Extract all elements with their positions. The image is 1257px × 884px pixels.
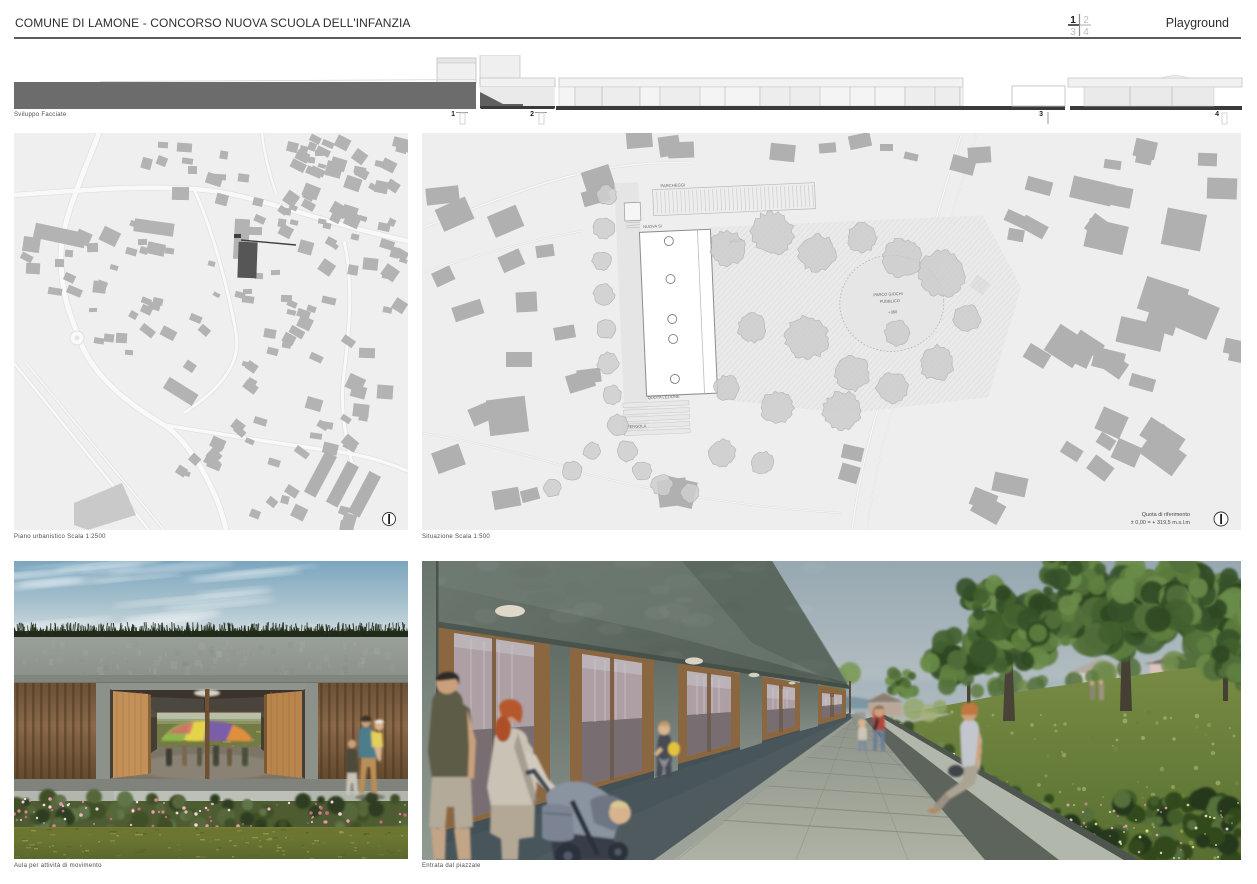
svg-text:NUOVA SI: NUOVA SI [643,223,662,229]
svg-text:2: 2 [1083,15,1089,26]
svg-text:4: 4 [1083,27,1089,38]
svg-text:4: 4 [1215,111,1219,118]
svg-text:2: 2 [530,111,534,118]
svg-text:1: 1 [451,111,455,118]
svg-text:Quota di riferimento: Quota di riferimento [1142,512,1190,518]
svg-text:PERGOLA: PERGOLA [627,423,647,429]
svg-text:± 0,00 = + 319,5 m.s.l.m: ± 0,00 = + 319,5 m.s.l.m [1131,520,1191,526]
svg-text:3: 3 [1039,111,1043,118]
svg-text:3: 3 [1070,27,1076,38]
svg-text:1: 1 [1070,15,1076,26]
svg-text:PUBBLICO: PUBBLICO [880,298,900,304]
svg-text:+360: +360 [888,309,898,314]
